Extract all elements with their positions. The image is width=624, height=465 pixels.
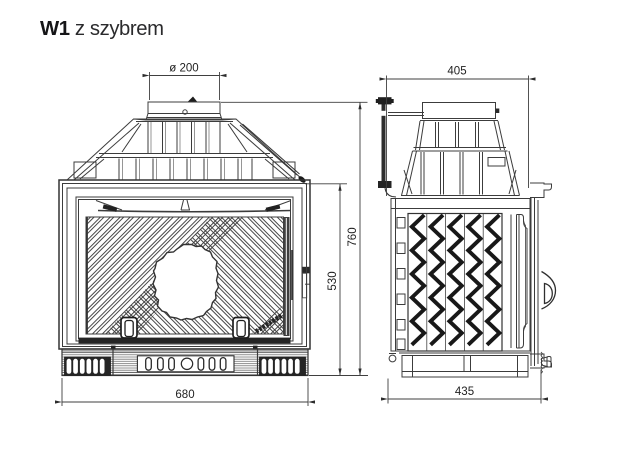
svg-text:ø 200: ø 200 (169, 63, 198, 75)
svg-text:435: 435 (455, 386, 474, 398)
svg-text:760: 760 (347, 227, 359, 246)
svg-text:405: 405 (447, 66, 466, 78)
svg-text:680: 680 (175, 389, 194, 401)
svg-text:W1 z szybrem: W1 z szybrem (40, 18, 164, 40)
svg-text:530: 530 (327, 271, 339, 290)
